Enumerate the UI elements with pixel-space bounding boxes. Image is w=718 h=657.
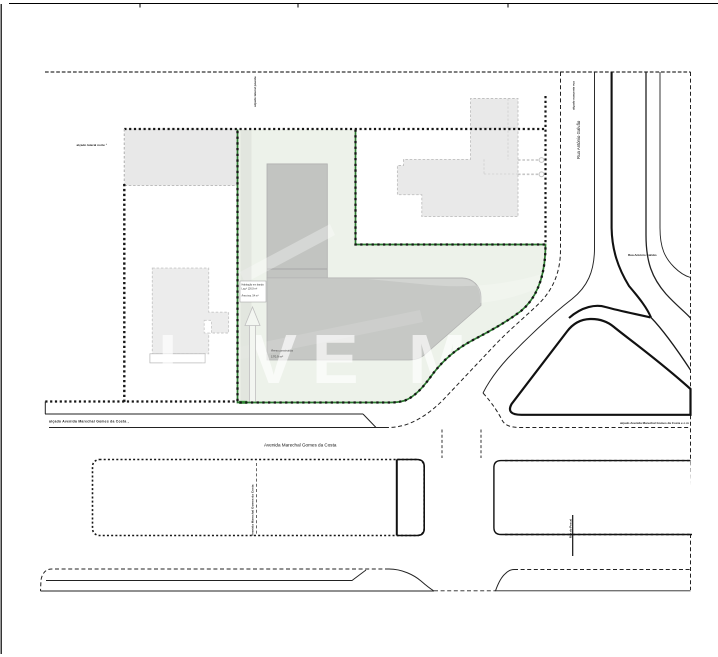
svg-text:170,9 m²: 170,9 m² <box>271 355 283 359</box>
svg-text:alçado nascente rua: alçado nascente rua <box>572 81 576 110</box>
svg-text:alçado Avenida Marechal Gomes: alçado Avenida Marechal Gomes da Costa e… <box>620 421 689 425</box>
svg-text:Área imp. 54 m²: Área imp. 54 m² <box>242 295 259 298</box>
svg-text:Avenida Marechal Gomes da Cost: Avenida Marechal Gomes da Costa <box>264 443 337 448</box>
svg-text:alçado lateral norte ¹: alçado lateral norte ¹ <box>77 143 107 147</box>
svg-text:Log.ª 126,9 m²: Log.ª 126,9 m² <box>242 287 258 291</box>
svg-text:Avenida Marechal Gomes da Cost: Avenida Marechal Gomes da Costa <box>251 484 255 536</box>
svg-text:alçado Avenida Marechal Gomes: alçado Avenida Marechal Gomes da Costa , <box>49 420 129 424</box>
svg-text:Rua António Galvão: Rua António Galvão <box>576 120 581 159</box>
svg-text:LIVE M: LIVE M <box>158 320 481 398</box>
svg-text:alçado lateral poente: alçado lateral poente <box>253 76 257 107</box>
svg-text:Área construída: Área construída <box>271 349 293 353</box>
svg-text:Habitação em banda: Habitação em banda <box>242 284 265 287</box>
svg-text:Rua do Pescal: Rua do Pescal <box>569 519 573 538</box>
svg-text:Rua António Galvão: Rua António Galvão <box>628 253 657 257</box>
